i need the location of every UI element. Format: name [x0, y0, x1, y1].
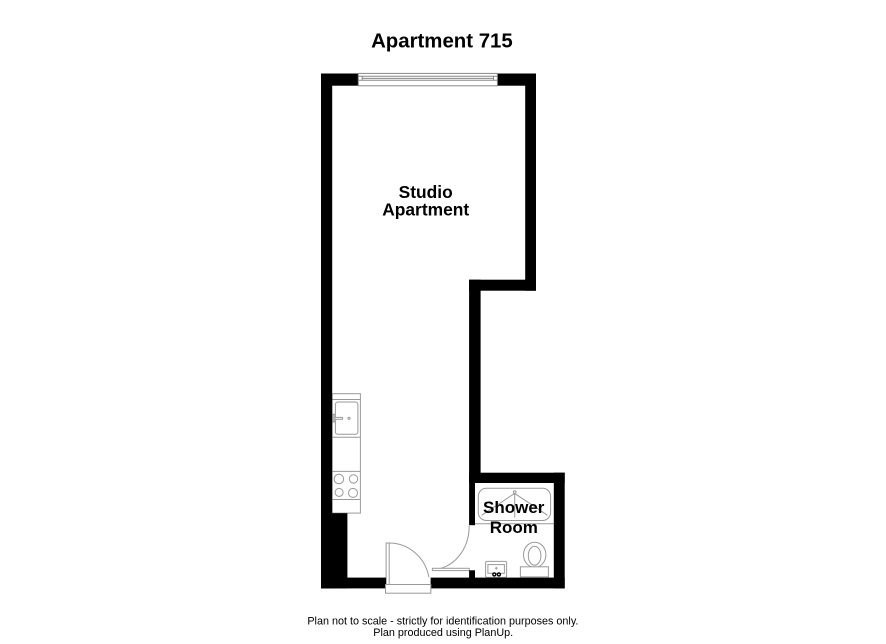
svg-text:Room: Room [490, 518, 538, 537]
svg-text:Plan not to scale - strictly f: Plan not to scale - strictly for identif… [307, 615, 578, 627]
svg-text:Apartment: Apartment [382, 200, 469, 220]
svg-text:Shower: Shower [483, 498, 545, 517]
svg-text:Apartment 715: Apartment 715 [371, 31, 513, 53]
svg-text:Plan produced using PlanUp.: Plan produced using PlanUp. [373, 627, 513, 639]
